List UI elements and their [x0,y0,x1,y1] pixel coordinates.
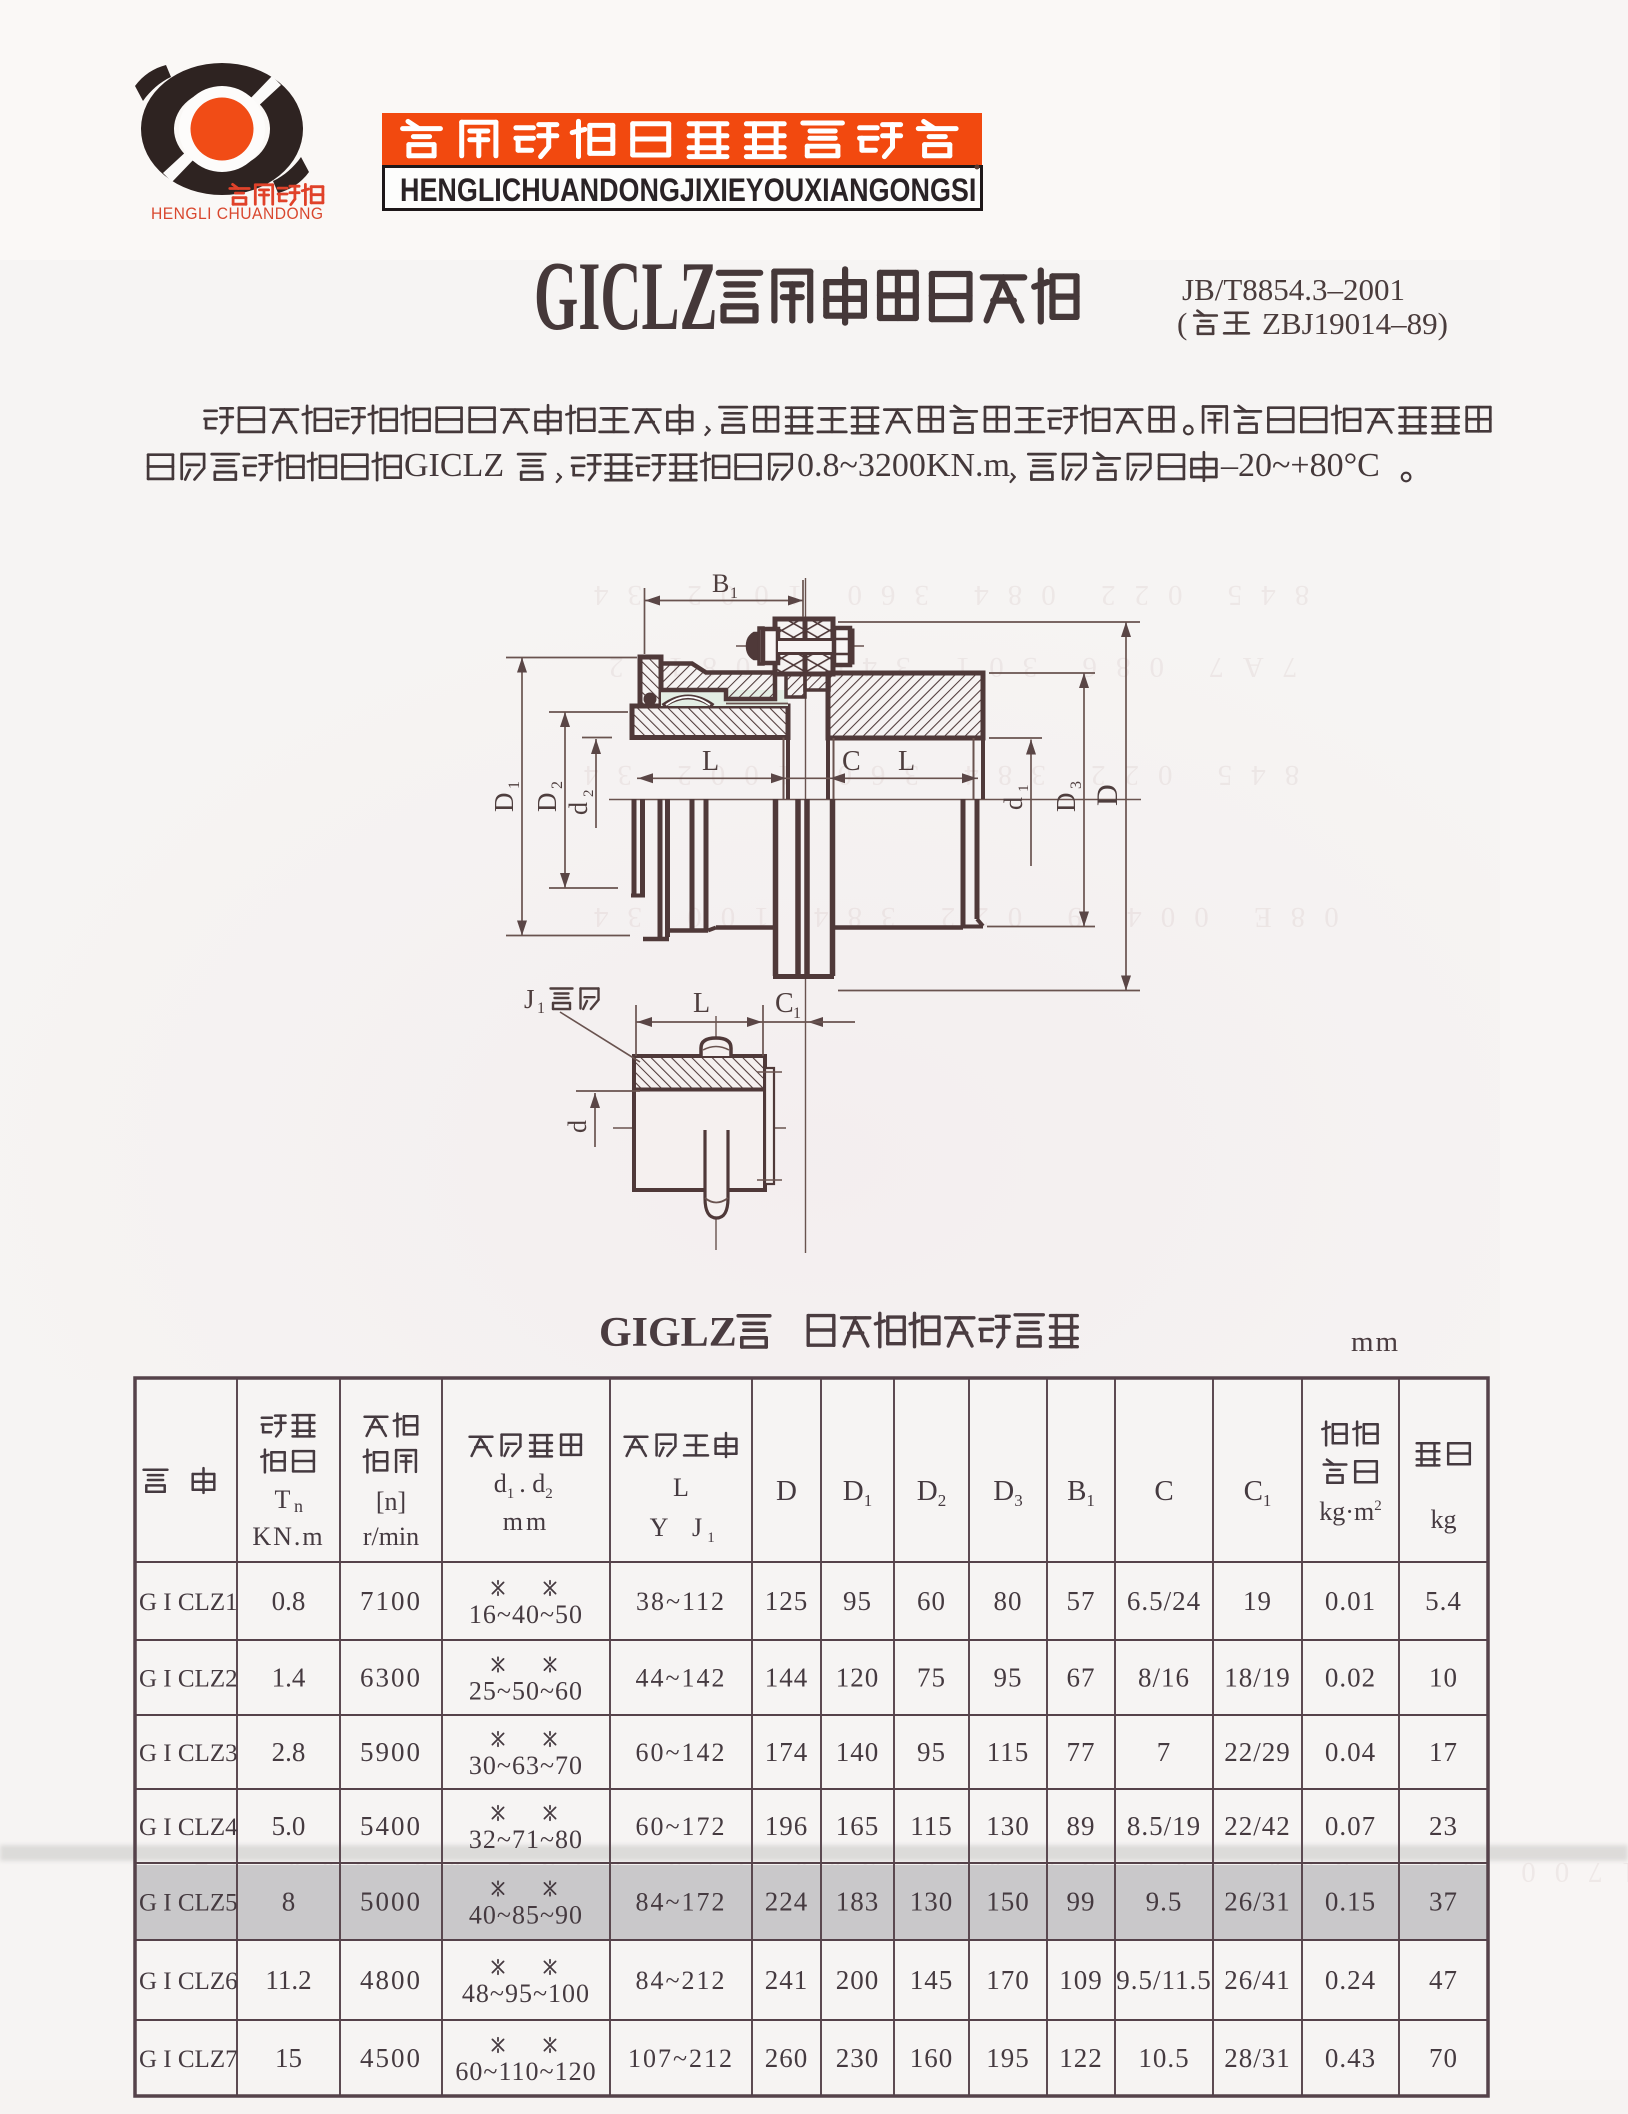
svg-text:B1: B1 [1067,1475,1095,1510]
svg-text:0.07: 0.07 [1325,1811,1376,1841]
svg-text:28/31: 28/31 [1224,2043,1291,2073]
svg-text:22/29: 22/29 [1224,1737,1291,1767]
svg-text:mm: mm [503,1507,549,1536]
svg-text:D3: D3 [993,1475,1022,1510]
svg-text:75: 75 [917,1663,946,1693]
svg-text:9.5: 9.5 [1146,1887,1183,1917]
svg-text:30~63~70: 30~63~70 [469,1751,583,1780]
svg-text:26/41: 26/41 [1224,1965,1291,1995]
svg-text:kg·m2: kg·m2 [1319,1497,1381,1526]
svg-text:1: 1 [730,585,738,602]
svg-text:G I CLZ6: G I CLZ6 [139,1968,238,1995]
svg-text:57: 57 [1067,1586,1096,1616]
svg-text:19: 19 [1243,1586,1272,1616]
svg-text:D: D [532,793,562,813]
svg-text:22/42: 22/42 [1224,1811,1291,1841]
svg-text:L: L [693,988,710,1019]
svg-text:D: D [489,793,519,813]
svg-text:1: 1 [1016,785,1032,793]
svg-text:D: D [1091,784,1124,806]
svg-text:5.4: 5.4 [1425,1586,1462,1616]
svg-text:95: 95 [917,1737,946,1767]
svg-text:99: 99 [1067,1887,1096,1917]
svg-text:[n]: [n] [376,1487,406,1516]
svg-text:2: 2 [581,790,597,798]
svg-text:200: 200 [836,1965,880,1995]
svg-text:1.4: 1.4 [272,1663,306,1693]
svg-text:10: 10 [1429,1663,1458,1693]
svg-text:8.5/19: 8.5/19 [1127,1811,1201,1841]
svg-text:9.5/11.5: 9.5/11.5 [1116,1965,1212,1995]
svg-text:L: L [673,1473,689,1502]
svg-text:G I CLZ4: G I CLZ4 [139,1814,238,1841]
svg-text:6.5/24: 6.5/24 [1127,1586,1201,1616]
svg-text:d: d [563,1120,592,1133]
svg-text:17: 17 [1429,1737,1458,1767]
svg-text:n: n [294,1496,303,1516]
svg-text:107~212: 107~212 [628,2044,734,2073]
svg-text:J: J [524,984,535,1014]
svg-text:77: 77 [1067,1737,1096,1767]
svg-text:15: 15 [275,2043,302,2073]
svg-text:60~172: 60~172 [635,1812,726,1841]
svg-text:7: 7 [1157,1737,1172,1767]
svg-text:d: d [564,802,593,815]
svg-text:145: 145 [910,1965,954,1995]
svg-text:150: 150 [986,1887,1030,1917]
svg-text:G I CLZ7: G I CLZ7 [139,2046,238,2073]
svg-text:C: C [842,746,861,777]
svg-text:260: 260 [765,2043,809,2073]
svg-text:241: 241 [765,1965,809,1995]
svg-text:5.0: 5.0 [272,1811,306,1841]
svg-text:183: 183 [836,1887,880,1917]
svg-text:5400: 5400 [360,1811,422,1841]
svg-text:4500: 4500 [360,2043,422,2073]
svg-text:224: 224 [765,1887,809,1917]
svg-text:KN.m: KN.m [252,1522,324,1551]
svg-text:0.01: 0.01 [1325,1586,1376,1616]
svg-text:89: 89 [1067,1811,1096,1841]
svg-text:5000: 5000 [360,1887,422,1917]
svg-text:130: 130 [986,1811,1030,1841]
svg-text:D: D [1051,793,1081,813]
svg-text:0.8: 0.8 [272,1586,306,1616]
svg-text:144: 144 [765,1663,809,1693]
svg-text:120: 120 [836,1663,880,1693]
svg-text:d1: d1 [494,1469,515,1502]
svg-text:0.24: 0.24 [1325,1965,1376,1995]
svg-text:. d2: . d2 [519,1469,553,1502]
svg-text:67: 67 [1067,1663,1096,1693]
svg-text:L: L [702,746,719,777]
svg-text:84~172: 84~172 [635,1888,726,1917]
svg-text:115: 115 [910,1811,953,1841]
svg-text:109: 109 [1059,1965,1103,1995]
svg-text:2: 2 [549,781,566,789]
svg-text:125: 125 [765,1586,809,1616]
svg-text:7100: 7100 [360,1586,422,1616]
svg-text:60~142: 60~142 [635,1738,726,1767]
svg-text:95: 95 [994,1663,1023,1693]
svg-text:8: 8 [282,1887,296,1917]
svg-text:84~212: 84~212 [635,1966,726,1995]
svg-text:18/19: 18/19 [1224,1663,1291,1693]
svg-text:C: C [1154,1475,1173,1507]
svg-text:38~112: 38~112 [636,1587,726,1616]
svg-text:80: 80 [994,1586,1023,1616]
svg-text:23: 23 [1429,1811,1458,1841]
svg-text:0.02: 0.02 [1325,1663,1376,1693]
svg-text:160: 160 [910,2043,954,2073]
svg-text:Y: Y [650,1513,669,1542]
svg-text:196: 196 [765,1811,809,1841]
svg-text:60~110~120: 60~110~120 [455,2057,596,2086]
svg-text:3: 3 [1068,781,1085,789]
svg-text:0.43: 0.43 [1325,2043,1376,2073]
svg-text:25~50~60: 25~50~60 [469,1677,583,1706]
svg-text:1: 1 [793,1005,801,1022]
svg-text:230: 230 [836,2043,880,2073]
svg-text:d: d [999,797,1028,810]
svg-text:95: 95 [843,1586,872,1616]
svg-text:16~40~50: 16~40~50 [469,1600,583,1629]
svg-text:70: 70 [1429,2043,1458,2073]
svg-text:11.2: 11.2 [265,1965,311,1995]
svg-text:G I CLZ2: G I CLZ2 [139,1666,238,1693]
svg-text:4800: 4800 [360,1965,422,1995]
svg-text:195: 195 [986,2043,1030,2073]
svg-text:B: B [712,569,729,598]
svg-text:1: 1 [537,1000,545,1017]
svg-text:60: 60 [917,1586,946,1616]
svg-text:140: 140 [836,1737,880,1767]
svg-text:5900: 5900 [360,1737,422,1767]
svg-text:1: 1 [707,1530,715,1546]
svg-text:47: 47 [1429,1965,1458,1995]
svg-text:0.04: 0.04 [1325,1737,1376,1767]
svg-text:10.5: 10.5 [1138,2043,1189,2073]
svg-text:J: J [692,1513,702,1542]
svg-text:kg: kg [1431,1505,1457,1534]
svg-text:48~95~100: 48~95~100 [462,1979,590,2008]
svg-text:2.8: 2.8 [272,1737,306,1767]
svg-text:122: 122 [1059,2043,1103,2073]
svg-text:26/31: 26/31 [1224,1887,1291,1917]
svg-text:C1: C1 [1244,1475,1272,1510]
svg-text:170: 170 [986,1965,1030,1995]
svg-text:r/min: r/min [363,1522,419,1551]
svg-text:37: 37 [1429,1887,1458,1917]
svg-text:174: 174 [765,1737,809,1767]
svg-text:1: 1 [506,781,523,789]
svg-text:8/16: 8/16 [1138,1663,1190,1693]
svg-text:0.15: 0.15 [1325,1887,1376,1917]
svg-text:165: 165 [836,1811,880,1841]
svg-text:6300: 6300 [360,1663,422,1693]
svg-text:C: C [775,988,794,1019]
svg-text:T: T [275,1485,291,1514]
svg-text:G I CLZ1: G I CLZ1 [139,1589,238,1616]
svg-text:G I CLZ5: G I CLZ5 [139,1890,238,1917]
svg-text:32~71~80: 32~71~80 [469,1825,583,1854]
svg-text:L: L [898,746,915,777]
svg-text:44~142: 44~142 [635,1664,726,1693]
svg-text:D: D [776,1475,797,1507]
svg-text:130: 130 [910,1887,954,1917]
svg-text:40~85~90: 40~85~90 [469,1901,583,1930]
svg-text:G I CLZ3: G I CLZ3 [139,1740,238,1767]
svg-text:D2: D2 [917,1475,946,1510]
svg-text:115: 115 [987,1737,1030,1767]
svg-text:D1: D1 [843,1475,872,1510]
